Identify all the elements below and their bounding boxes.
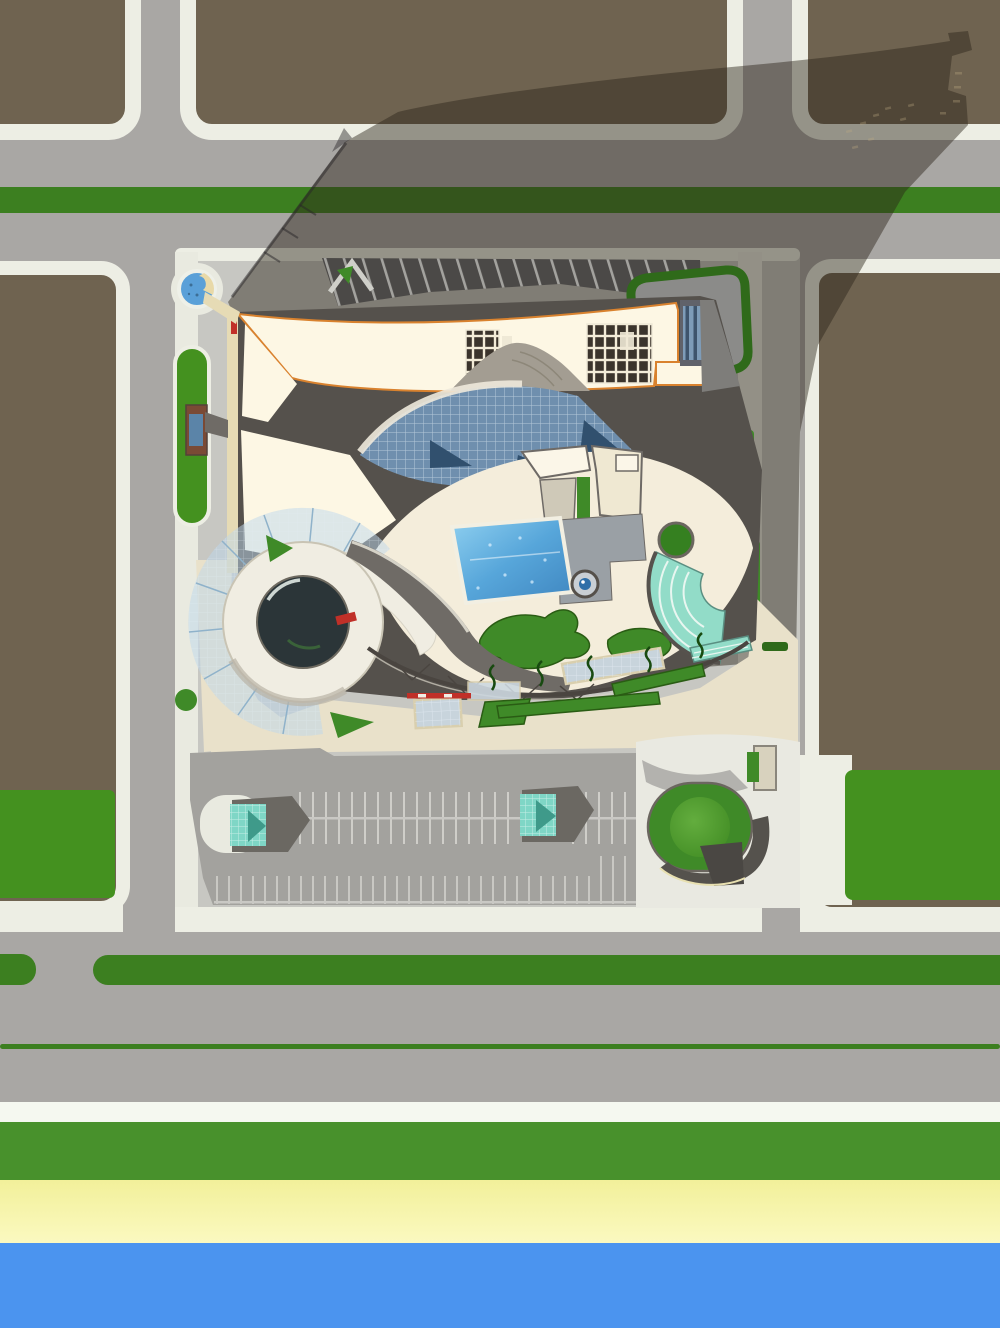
parking-ticks-row2 [214, 876, 636, 904]
median-pill-main [93, 955, 1000, 985]
median-pill-left [0, 954, 36, 985]
parking-lot [190, 748, 636, 905]
courtyard-white-box [616, 455, 638, 471]
aerial-site-plan [0, 0, 1000, 1328]
rooftop-box-3 [620, 332, 634, 350]
waterfront-bands [0, 1102, 1000, 1328]
swimming-pool [452, 518, 572, 603]
sand-strip [0, 1180, 1000, 1243]
median-thin-line [0, 1044, 1000, 1049]
courtyard-green-stripe [577, 477, 590, 519]
parcel-left-lawn [0, 790, 115, 898]
entrance-glass-canopy-1 [414, 698, 461, 728]
courtyard-fountain [572, 571, 598, 597]
west-lawn-dot [175, 689, 197, 711]
parcel-right-sidewalk [798, 755, 852, 905]
promenade-white-strip [0, 1102, 1000, 1122]
parcel-right-lawn [845, 770, 1000, 900]
beach-green-strip [0, 1122, 1000, 1180]
parcel-top-left [0, 0, 133, 132]
parking-line-row2 [214, 901, 636, 904]
skylight-grid-b [587, 324, 652, 383]
west-kiosk-glazing [189, 414, 203, 446]
east-walkway-hedge-1 [762, 642, 788, 651]
roundabout-ticks [598, 856, 636, 904]
tree-planter-circle [659, 523, 693, 557]
red-awning [407, 693, 471, 699]
courtyard-block-3 [540, 478, 576, 522]
building-complex [188, 296, 798, 780]
sea-water-strip [0, 1243, 1000, 1328]
